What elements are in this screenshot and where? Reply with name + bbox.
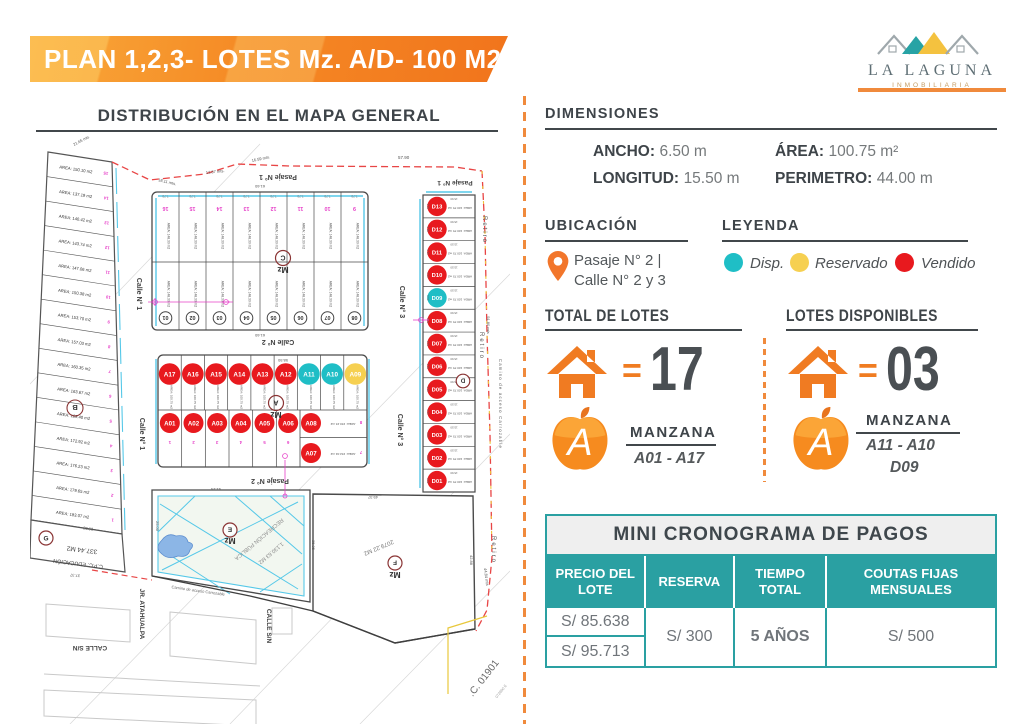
map-label: AREA: 100.75 m2 (448, 457, 472, 461)
perimetro-value: 44.00 m (877, 170, 933, 187)
map-label: AREA: 150.15 m2 (330, 422, 355, 426)
leyenda-heading: LEYENDA (722, 218, 800, 234)
col-cuotas: COUTAS FIJAS MENSUALES (827, 556, 995, 608)
map-label: A04 (235, 421, 247, 428)
map-label: 04 (244, 314, 250, 320)
meas-58-50: 58.50 (277, 358, 288, 363)
mzE-letter: E (227, 526, 232, 533)
legend-label-disp: Disp. (750, 255, 784, 272)
map-label: 16 (163, 205, 169, 211)
map-label: 7.70 (270, 194, 276, 198)
map-label: 6.50 (426, 387, 430, 393)
ancho-value: 6.50 m (659, 143, 706, 160)
disponibles-value: 03 (886, 334, 940, 405)
cuota-cell: S/ 500 (827, 608, 995, 666)
map-label: 6.50 (426, 478, 430, 484)
map-label: D (460, 377, 465, 384)
map-label: 7.70 (351, 194, 357, 198)
map-label: 6.50 (426, 364, 430, 370)
map-label: AREA: 148.30 m2 (221, 223, 225, 250)
street-camino-b: Camino de acceso Carrozable (498, 359, 503, 449)
map-label: 14 (217, 205, 223, 211)
map-title-underline (36, 130, 498, 132)
site-map: AREA: 150.10 m215AREA: 137.19 m214AREA: … (30, 134, 510, 724)
street-calle1-b: Calle N° 1 (138, 418, 146, 450)
map-title: DISTRIBUCIÓN EN EL MAPA GENERAL (30, 106, 508, 126)
meas-35-35: 35.35 (311, 540, 316, 551)
map-label: 06 (298, 314, 304, 320)
disponibles-rule (786, 329, 978, 331)
map-label: 03 (217, 314, 223, 320)
map-label: A06 (282, 421, 294, 428)
dim-area: ÁREA: 100.75 m² (775, 143, 898, 161)
street-retiro-a: Retiro (481, 216, 487, 244)
company-logo: LA LAGUNA INMOBILIARIA (858, 24, 1006, 90)
manzana-range2-disponibles: D09 (890, 459, 918, 477)
manzana-range-total: A01 - A17 (634, 450, 704, 468)
map-label: A (273, 399, 278, 406)
map-label: D08 (432, 319, 443, 325)
map-label: D06 (432, 365, 443, 371)
map-label: AREA: 100.75 m2 (448, 320, 472, 324)
roofs-icon (872, 24, 992, 56)
map-label: 7.70 (162, 194, 168, 198)
house-icon-disponibles (786, 342, 850, 400)
map-label: 02 (190, 314, 196, 320)
map-label: 07 (325, 314, 331, 320)
map-label: D13 (432, 205, 443, 211)
manzana-range-disponibles: A11 - A10 (866, 437, 935, 455)
map-label: AREA: 148.30 m2 (167, 223, 171, 250)
map-label: 6.50 (426, 318, 430, 324)
col-precio: PRECIO DEL LOTE (547, 556, 646, 608)
map-label: D02 (432, 456, 443, 462)
map-label: AREA: 148.30 m2 (329, 281, 333, 308)
map-label: C (280, 254, 285, 261)
map-label: 6.50 (426, 341, 430, 347)
page-title: PLAN 1,2,3- LOTES Mz. A/D- 100 M2 (44, 44, 502, 74)
mzF-mz: Mz (389, 570, 400, 580)
map-label: AREA: 100.75 m2 (448, 366, 472, 370)
area-label: ÁREA: (775, 143, 824, 160)
map-label: 12 (271, 205, 277, 211)
apple-icon-disponibles: A (788, 404, 854, 474)
map-label: 15.50 (450, 266, 458, 270)
meas-25-00: 25.00 (155, 521, 160, 532)
map-label: AREA: 148.30 m2 (194, 223, 198, 250)
meas-61-60-a: 61.60 (254, 184, 265, 189)
map-label: A07 (305, 451, 317, 458)
map-label: AREA: 100.75 m2 (239, 385, 243, 409)
map-label: A08 (305, 421, 317, 428)
meas-42-88: 42.88 (469, 555, 474, 566)
map-label: 01 (163, 314, 169, 320)
map-label: AREA: 100.75 m2 (286, 385, 290, 409)
map-label: 15.50 (450, 357, 458, 361)
map-label: AREA: 100.75 m2 (448, 434, 472, 438)
map-label: AREA: 148.30 m2 (167, 281, 171, 308)
map-label: AREA: 100.75 m2 (263, 385, 267, 409)
street-calle1-a: Calle N° 1 (135, 278, 143, 310)
meas-16-59: 16.59 mts. (251, 154, 270, 163)
meas-37-37: 37.37 (69, 572, 80, 578)
meas-072900: 072900 E (495, 683, 508, 699)
map-label: 15.50 (450, 425, 458, 429)
legend-dot-reservado (790, 253, 809, 272)
map-label: 15.50 (450, 197, 458, 201)
map-label: A15 (210, 372, 222, 379)
map-label: D10 (432, 273, 443, 279)
mzF-letter: F (393, 559, 397, 566)
map-label: 15.50 (450, 311, 458, 315)
reserva-cell: S/ 300 (646, 608, 736, 666)
tiempo-cell: 5 AÑOS (735, 608, 827, 666)
map-label: D12 (432, 227, 443, 233)
longitud-value: 15.50 m (684, 170, 740, 187)
precio-1: S/ 85.638 (547, 608, 644, 637)
street-calle-sn-a: CALLE S/N (73, 644, 108, 651)
map-label: 6.50 (426, 455, 430, 461)
map-label: A09 (350, 372, 362, 379)
ancho-label: ANCHO: (593, 143, 655, 160)
map-label: AREA: 148.30 m2 (329, 223, 333, 250)
ubicacion-rule (545, 240, 688, 242)
ubicacion-line2: Calle N° 2 y 3 (574, 271, 666, 291)
map-label: A14 (233, 372, 245, 379)
map-label: AREA: 100.75 m2 (448, 274, 472, 278)
map-label: 6.50 (426, 272, 430, 278)
legend-dot-disp (724, 253, 743, 272)
logo-underline (858, 88, 1006, 92)
map-label: AREA: 100.75 m2 (448, 252, 472, 256)
map-label: 15.50 (450, 448, 458, 452)
map-label: AREA: 148.30 m2 (248, 223, 252, 250)
map-label: 6.50 (426, 227, 430, 233)
map-label: AREA: 100.75 m2 (193, 385, 197, 409)
map-label: AREA: 100.75 m2 (448, 297, 472, 301)
map-label: AREA: 100.75 m2 (448, 389, 472, 393)
house-icon-total (545, 342, 609, 400)
map-label: AREA: 100.75 m2 (448, 480, 472, 484)
dim-perimetro: PERIMETRO: 44.00 m (775, 170, 933, 188)
total-value: 17 (650, 334, 704, 405)
map-label: 13 (244, 205, 250, 211)
legend-label-vendido: Vendido (921, 255, 976, 272)
map-label: 6.50 (426, 409, 430, 415)
meas-61-60-b: 61.60 (254, 333, 265, 338)
map-label: AREA: 148.30 m2 (248, 281, 252, 308)
map-label: D05 (432, 387, 443, 393)
map-label: D11 (432, 250, 443, 256)
map-label: A12 (280, 372, 292, 379)
title-banner: PLAN 1,2,3- LOTES Mz. A/D- 100 M2 (30, 36, 508, 82)
ubicacion-heading: UBICACIÓN (545, 218, 638, 234)
map-label: 10 (325, 205, 331, 211)
meas-44-84: 44.84 mts (483, 568, 490, 586)
block-mzD: D1315.50AREA: 100.75 m26.50D1215.50AREA:… (420, 192, 475, 492)
disponibles-equals: = (858, 352, 878, 391)
map-label: AREA: 148.30 m2 (194, 281, 198, 308)
map-label: AREA: 148.30 m2 (302, 223, 306, 250)
map-label: AREA: 148.30 m2 (275, 281, 279, 308)
area-value: 100.75 m² (829, 143, 899, 160)
map-label: 15.50 (450, 471, 458, 475)
map-label: Mz (277, 265, 288, 275)
map-label: D04 (432, 410, 443, 416)
map-label: AREA: 148.30 m2 (275, 223, 279, 250)
street-calle3-a: Calle N° 3 (398, 286, 406, 318)
legend-label-reservado: Reservado (815, 255, 888, 272)
total-equals: = (622, 352, 642, 391)
map-label: Mz (270, 410, 281, 420)
cronograma-header-row: PRECIO DEL LOTE RESERVA TIEMPO TOTAL COU… (547, 556, 995, 608)
map-label: D07 (432, 342, 443, 348)
map-label: AREA: 100.75 m2 (448, 412, 472, 416)
map-label: 6.50 (426, 295, 430, 301)
dimensiones-heading: DIMENSIONES (545, 106, 660, 122)
manzana-label-total: MANZANA (630, 424, 716, 441)
map-label: 6.50 (426, 249, 430, 255)
map-label: AREA: 100.75 m2 (332, 385, 336, 409)
map-label: A16 (187, 372, 199, 379)
dim-ancho: ANCHO: 6.50 m (593, 143, 707, 161)
manzana-rule-disponibles (856, 432, 960, 434)
map-label: 7.70 (243, 194, 249, 198)
map-label: AREA: 100.75 m2 (309, 385, 313, 409)
block-mzB: AREA: 150.10 m215AREA: 137.19 m214AREA: … (30, 152, 125, 572)
precio-cell: S/ 85.638 S/ 95.713 (547, 608, 646, 666)
street-retiro-c: Retiro (490, 536, 496, 564)
manzana-rule-total (626, 444, 716, 446)
disponibles-heading: LOTES DISPONIBLES (786, 306, 938, 326)
map-label: AREA: 100.75 m2 (216, 385, 220, 409)
flyer-page: PLAN 1,2,3- LOTES Mz. A/D- 100 M2 LA LAG… (0, 0, 1024, 724)
precio-2: S/ 95.713 (547, 637, 644, 666)
map-label: AREA: 100.75 m2 (170, 385, 174, 409)
map-label: A11 (303, 372, 315, 379)
map-label: A13 (257, 372, 269, 379)
meas-57-90: 57.90 (398, 155, 410, 160)
cronograma-title: MINI CRONOGRAMA DE PAGOS (547, 516, 995, 556)
logo-name: LA LAGUNA (858, 62, 1006, 80)
total-rule (545, 329, 742, 331)
map-label: 15 (190, 205, 196, 211)
map-label: 15.50 (450, 334, 458, 338)
map-label: 7.70 (216, 194, 222, 198)
column-divider (523, 96, 526, 724)
meas-18-11: 18.11 mts. (158, 177, 177, 186)
street-pasaje1-c: Pasaje N° 1 (259, 173, 297, 181)
dim-longitud: LONGITUD: 15.50 m (593, 170, 740, 188)
map-label: 6.50 (426, 432, 430, 438)
totals-divider (763, 338, 766, 482)
map-label: 15.50 (450, 403, 458, 407)
svg-text:A: A (806, 421, 833, 463)
perimetro-label: PERIMETRO: (775, 170, 872, 187)
map-label: B (72, 403, 78, 412)
location-pin-icon (546, 250, 570, 282)
col-tiempo: TIEMPO TOTAL (735, 556, 827, 608)
map-label: 11 (298, 205, 304, 211)
map-label: 7.70 (189, 194, 195, 198)
block-mzC: 7.7016AREA: 148.30 m2AREA: 148.30 m2017.… (152, 192, 368, 330)
cronograma-table: MINI CRONOGRAMA DE PAGOS PRECIO DEL LOTE… (545, 514, 997, 668)
meas-13-87: 13.87 mts. (206, 168, 225, 175)
street-pasaje1-d: Pasaje N° 1 (437, 179, 473, 187)
street-calle2: Calle N° 2 (262, 338, 294, 346)
meas-91-80: 91.80 mts (486, 316, 491, 334)
manzana-label-disponibles: MANZANA (866, 412, 952, 429)
leyenda-rule (722, 240, 968, 242)
map-label: D09 (432, 296, 443, 302)
map-label: AREA: 152.04 m2 (330, 452, 355, 456)
map-label: AREA: 148.30 m2 (302, 281, 306, 308)
map-label: D01 (432, 479, 443, 485)
col-reserva: RESERVA (646, 556, 736, 608)
block-mzA: A17AREA: 100.75 m2A16AREA: 100.75 m2A15A… (156, 355, 369, 467)
map-label: AREA: 100.75 m2 (448, 229, 472, 233)
dimensiones-rule (545, 128, 997, 130)
street-retiro-b: Retiro (478, 332, 484, 360)
ubicacion-line1: Pasaje N° 2 | (574, 251, 661, 271)
map-label: 05 (271, 314, 277, 320)
map-label: 6.50 (426, 204, 430, 210)
legend-dot-vendido (895, 253, 914, 272)
mzG-letter: G (43, 536, 48, 543)
map-label: AREA: 148.30 m2 (356, 281, 360, 308)
cronograma-body-row: S/ 85.638 S/ 95.713 S/ 300 5 AÑOS S/ 500 (547, 608, 995, 666)
total-heading: TOTAL DE LOTES (545, 306, 669, 326)
map-label: 08 (352, 314, 358, 320)
map-label: 7.70 (297, 194, 303, 198)
map-label: A05 (259, 421, 271, 428)
map-label: 15.50 (450, 220, 458, 224)
map-label: A17 (164, 372, 176, 379)
street-calle-sn-b: CALLE S/N (265, 609, 272, 644)
street-pasaje2: Pasaje N° 2 (251, 477, 289, 485)
map-label: AREA: 100.75 m2 (448, 206, 472, 210)
map-label: A01 (164, 421, 176, 428)
neighbor-blocks (44, 604, 292, 724)
svg-text:A: A (565, 421, 592, 463)
map-label: A02 (188, 421, 200, 428)
meas-21-65: 21.65 mts (72, 134, 90, 147)
map-label: 15.50 (450, 288, 458, 292)
map-label: D03 (432, 433, 443, 439)
map-label: AREA: 100.75 m2 (448, 343, 472, 347)
meas-49-37: 49.37 (367, 495, 378, 500)
map-label: 9 (353, 205, 356, 211)
mzE-mz: Mz (224, 536, 235, 546)
meas-41-24: 41.24 (210, 487, 221, 492)
map-label: A10 (326, 372, 338, 379)
street-calle3-b: Calle N° 3 (396, 414, 404, 446)
map-label: 15.50 (450, 243, 458, 247)
street-jr-atahualpa: JR. ATAHUALPA (138, 589, 145, 640)
longitud-label: LONGITUD: (593, 170, 679, 187)
map-label: AREA: 100.75 m2 (355, 385, 359, 409)
map-label: 7.70 (324, 194, 330, 198)
apple-icon-total: A (547, 404, 613, 474)
map-label: A03 (211, 421, 223, 428)
map-label: AREA: 148.30 m2 (356, 223, 360, 250)
